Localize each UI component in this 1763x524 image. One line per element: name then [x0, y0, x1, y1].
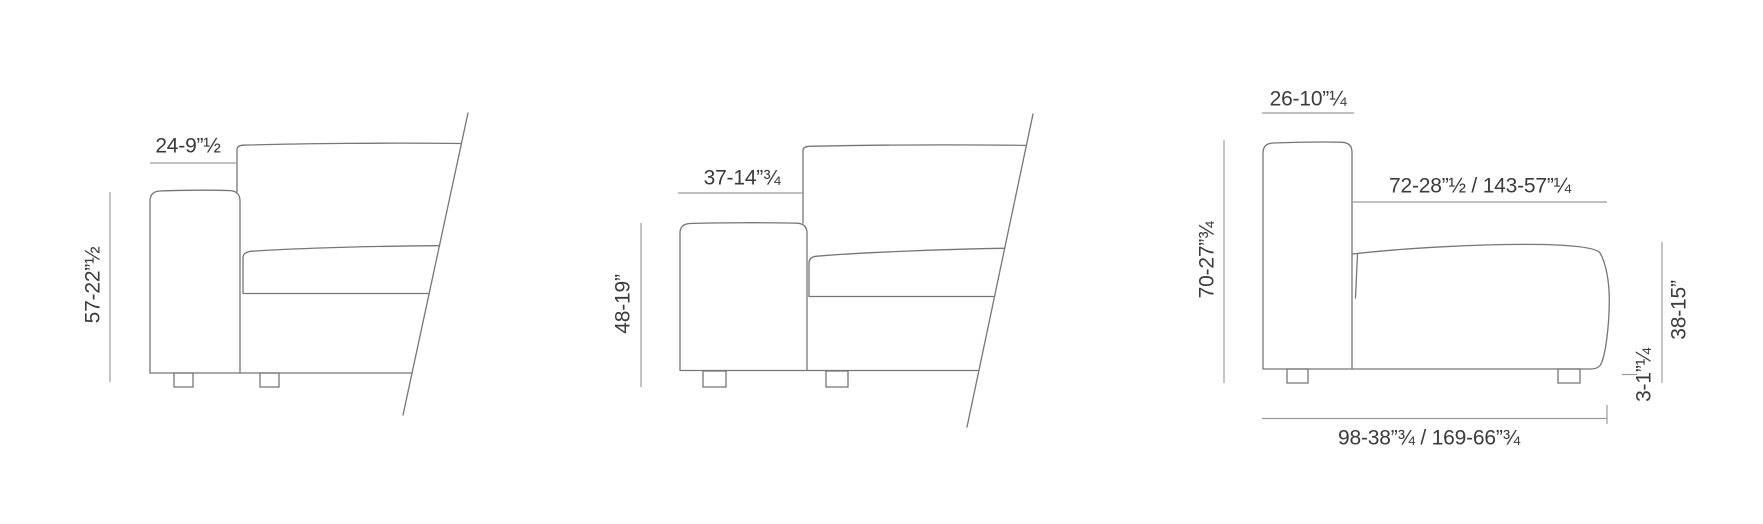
- diagram3-total-length-label: 98-38”¾ / 169-66”¾: [1338, 428, 1520, 449]
- diagram3-cushion-gap-line: [1356, 254, 1358, 298]
- diagram2-break-line: [967, 114, 1033, 427]
- diagram2-foot-right: [826, 371, 848, 387]
- diagram3-foot-left: [1287, 369, 1308, 383]
- diagram1-dimension-lines: [110, 163, 237, 382]
- diagram3-seat-height-label: 38-15”: [1669, 280, 1690, 340]
- diagram1-break-line: [403, 113, 468, 415]
- diagram2-foot-left: [703, 371, 726, 387]
- diagram1-seat-cushion-outline: [243, 246, 439, 293]
- diagram2-arm-height-label: 48-19”: [613, 274, 634, 334]
- diagram2-backrest-outline: [803, 145, 1026, 223]
- diagram3-back-width-label: 26-10”¼: [1270, 89, 1347, 110]
- diagram3-dimension-lines: [1224, 113, 1662, 424]
- diagram2-arm-width-label: 37-14”¾: [704, 168, 781, 189]
- diagram3-seat-outline: [1353, 244, 1610, 369]
- diagram3-foot-right: [1558, 369, 1580, 383]
- diagram1-foot-right: [260, 373, 279, 387]
- diagram3-total-height-label: 70-27”¾: [1197, 222, 1218, 299]
- diagram3-foot-height-label: 3-1”¼: [1634, 348, 1655, 402]
- diagram2-dimension-lines: [641, 193, 803, 387]
- diagram2-furniture-outline: [680, 114, 1033, 427]
- diagram2-seat-cushion-outline: [809, 248, 1004, 296]
- diagram1-arm-outline: [150, 190, 240, 373]
- diagram3-seat-length-label: 72-28”½ / 143-57”¼: [1389, 176, 1571, 197]
- diagram1-arm-width-label: 24-9”½: [155, 136, 220, 157]
- dimension-spec-sheet: 24-9”½ 57-22”½ 37-14”¾ 48-19” 26-10”¼ 70…: [0, 0, 1763, 524]
- diagram1-foot-left: [174, 373, 193, 387]
- diagram1-backrest-outline: [237, 143, 461, 192]
- diagram1-arm-height-label: 57-22”½: [83, 247, 104, 324]
- diagram3-backrest-outline: [1263, 142, 1352, 369]
- diagram1-furniture-outline: [150, 113, 468, 415]
- diagram2-arm-outline: [680, 223, 807, 370]
